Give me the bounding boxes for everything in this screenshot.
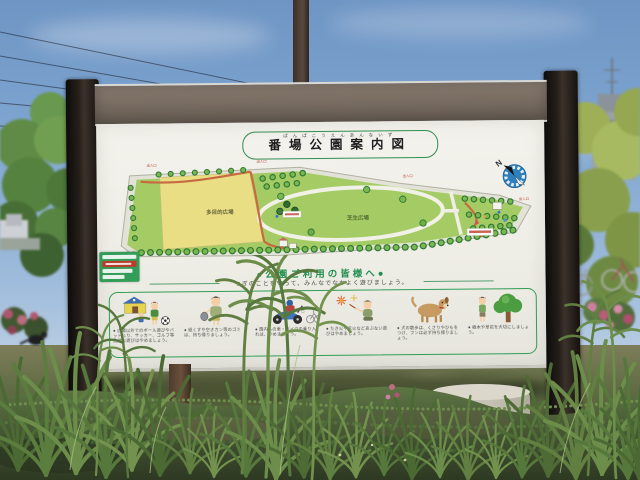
park-sign-photo: ばんばこうえんあんないず 番場公園案内図	[0, 0, 640, 480]
compass-n: N	[494, 158, 504, 169]
label-lawn: 芝生広場	[347, 214, 370, 222]
page-title: 番場公園案内図	[243, 137, 437, 153]
park-map: 多目的広場 芝生広場 出入口 出入口 出入口 出入口 出入口	[110, 154, 535, 270]
foreground-grass	[0, 255, 640, 480]
svg-text:出入口: 出入口	[403, 173, 413, 178]
compass-icon: N	[494, 154, 530, 192]
sign-header-band	[95, 80, 547, 126]
svg-text:出入口: 出入口	[256, 159, 266, 164]
svg-text:出入口: 出入口	[519, 196, 529, 201]
label-multipurpose-field: 多目的広場	[206, 208, 234, 216]
svg-text:出入口: 出入口	[146, 163, 156, 168]
